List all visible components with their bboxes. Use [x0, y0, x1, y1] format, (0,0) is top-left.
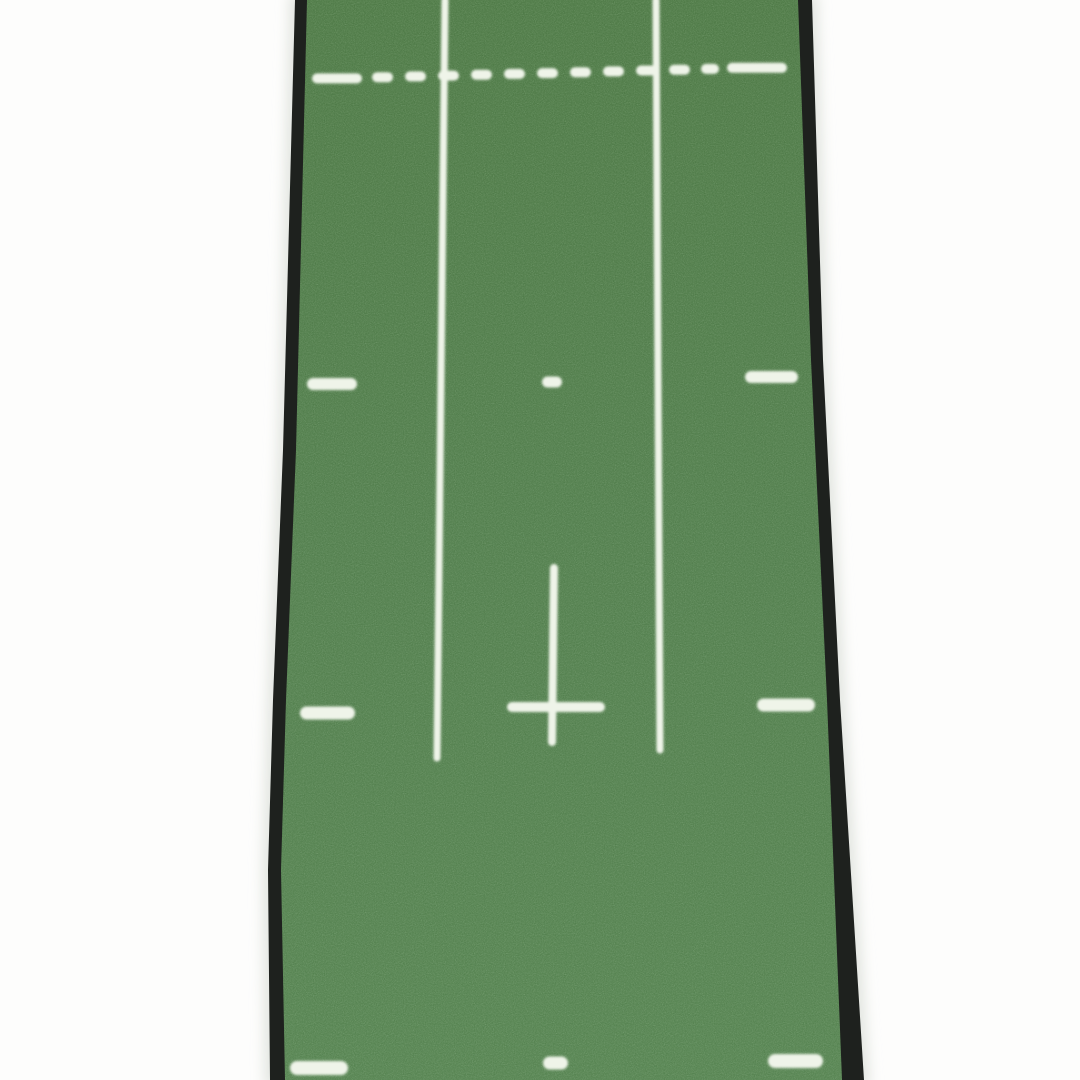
dash-segment: [669, 65, 690, 75]
dash-segment: [570, 67, 591, 77]
mat-turf-texture: [281, 0, 842, 1080]
photo-canvas: [0, 0, 1080, 1080]
dash-segment: [701, 64, 719, 74]
tick-mid-right: [745, 371, 798, 383]
dash-segment: [603, 66, 624, 76]
tick-bottom-center: [543, 1057, 568, 1070]
dash-segment: [312, 73, 362, 83]
tick-bottom-right: [768, 1054, 823, 1068]
putting-mat-photo: [0, 0, 1080, 1080]
dash-segment: [405, 71, 426, 81]
center-target-line: [552, 568, 554, 742]
tick-mid-center: [542, 377, 562, 388]
tick-lower-left: [300, 707, 355, 720]
right-guide-line: [656, 0, 660, 750]
dash-segment: [727, 63, 787, 73]
dash-segment: [537, 68, 558, 78]
tick-lower-right: [757, 699, 815, 712]
dash-segment: [471, 70, 492, 80]
dash-segment: [504, 69, 525, 79]
tick-bottom-left: [290, 1061, 348, 1075]
dash-segment: [372, 72, 393, 82]
tick-mid-left: [307, 378, 357, 390]
